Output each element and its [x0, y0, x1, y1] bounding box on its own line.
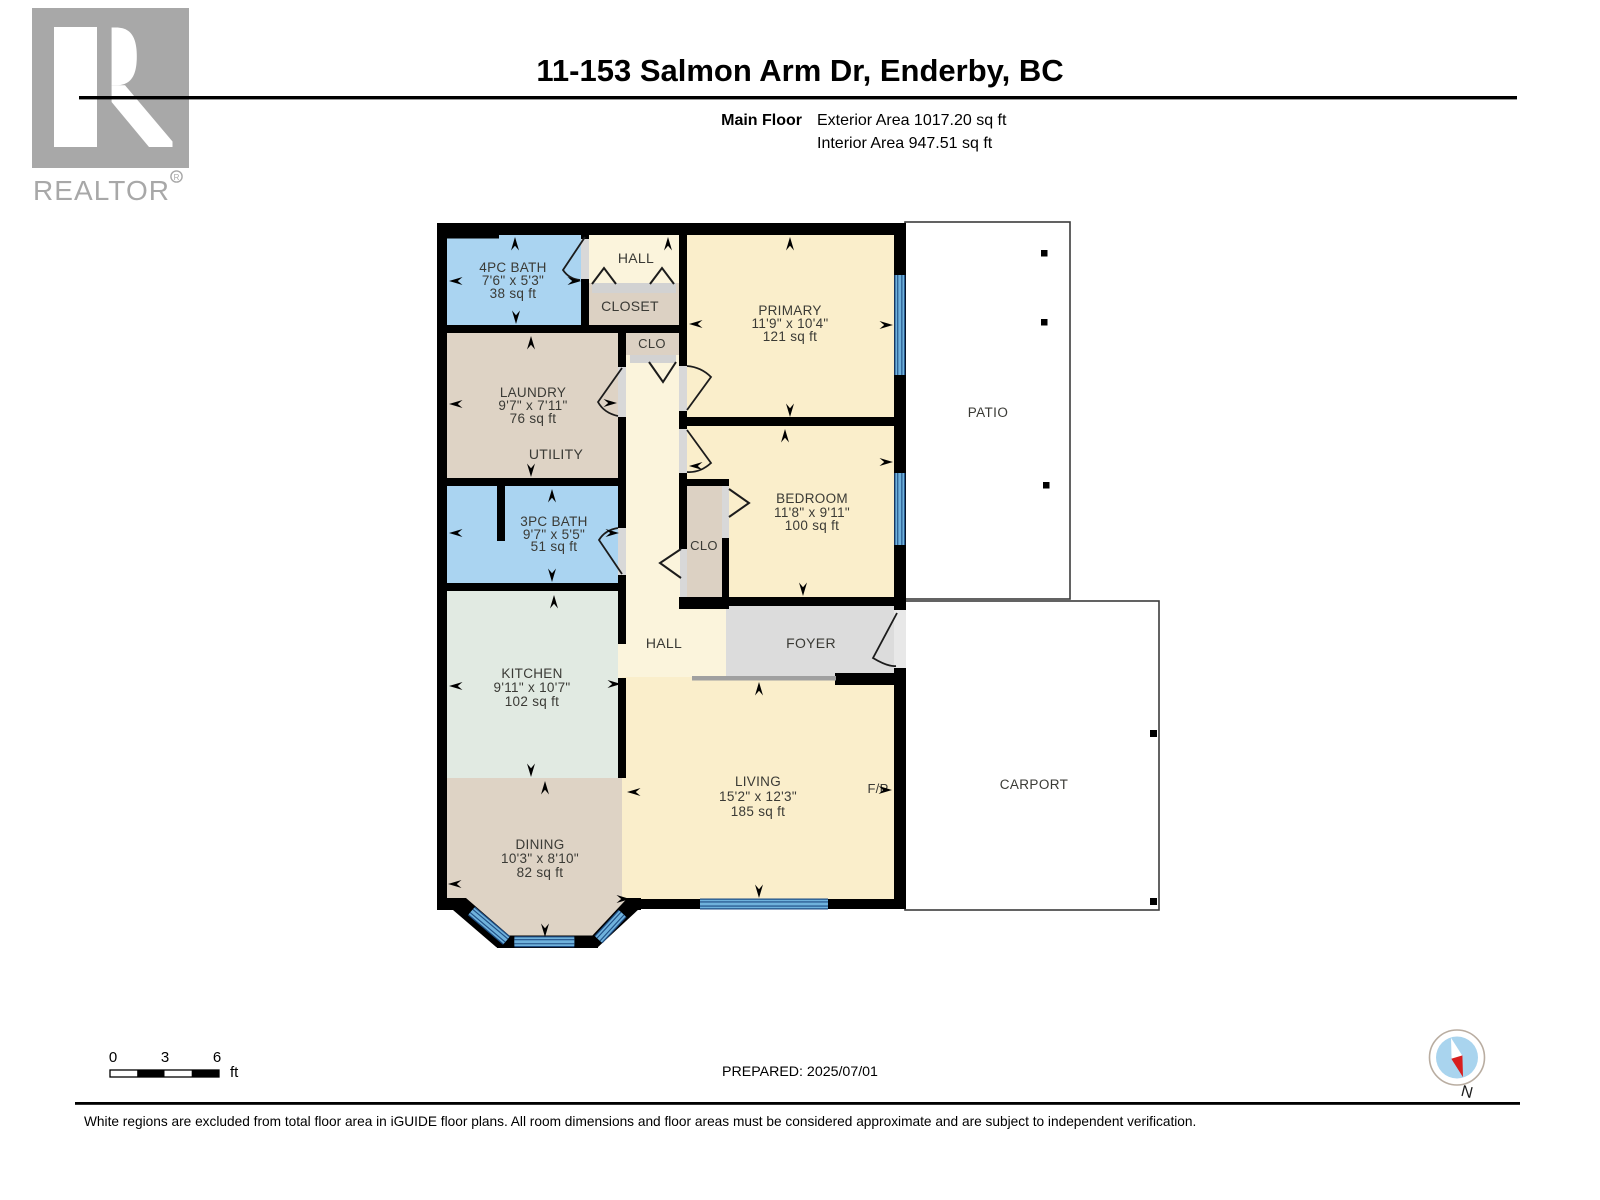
svg-text:FOYER: FOYER — [786, 635, 836, 651]
svg-text:HALL: HALL — [646, 635, 682, 651]
svg-text:CARPORT: CARPORT — [1000, 777, 1069, 792]
svg-text:R: R — [174, 173, 180, 182]
svg-text:51 sq ft: 51 sq ft — [531, 539, 578, 554]
svg-text:121 sq ft: 121 sq ft — [763, 329, 818, 344]
svg-text:38 sq ft: 38 sq ft — [490, 286, 537, 301]
svg-text:LIVING: LIVING — [735, 774, 781, 789]
svg-text:PREPARED: 2025/07/01: PREPARED: 2025/07/01 — [722, 1064, 878, 1080]
svg-text:6: 6 — [213, 1049, 221, 1066]
svg-text:REALTOR: REALTOR — [33, 175, 170, 206]
svg-text:185 sq ft: 185 sq ft — [731, 804, 786, 819]
svg-text:PATIO: PATIO — [968, 405, 1009, 420]
svg-text:11-153 Salmon Arm Dr, Enderby,: 11-153 Salmon Arm Dr, Enderby, BC — [536, 53, 1063, 88]
svg-text:76 sq ft: 76 sq ft — [510, 411, 557, 426]
svg-text:Exterior Area 1017.20 sq ft: Exterior Area 1017.20 sq ft — [817, 112, 1007, 129]
svg-text:CLO: CLO — [638, 336, 666, 351]
svg-text:15'2" x 12'3": 15'2" x 12'3" — [719, 789, 797, 804]
svg-text:10'3" x 8'10": 10'3" x 8'10" — [501, 851, 579, 866]
svg-text:CLO: CLO — [690, 538, 718, 553]
svg-text:UTILITY: UTILITY — [529, 446, 584, 462]
svg-text:Main Floor: Main Floor — [721, 112, 802, 129]
svg-text:Interior Area 947.51 sq ft: Interior Area 947.51 sq ft — [817, 135, 993, 152]
svg-text:100 sq ft: 100 sq ft — [785, 518, 840, 533]
svg-text:ft: ft — [230, 1064, 239, 1081]
svg-text:KITCHEN: KITCHEN — [501, 666, 562, 681]
svg-text:BEDROOM: BEDROOM — [776, 491, 848, 506]
svg-text:3: 3 — [161, 1049, 169, 1066]
svg-text:CLOSET: CLOSET — [601, 298, 659, 314]
svg-text:102 sq ft: 102 sq ft — [505, 694, 560, 709]
svg-text:White regions are excluded fro: White regions are excluded from total fl… — [84, 1114, 1196, 1129]
svg-text:82 sq ft: 82 sq ft — [517, 865, 564, 880]
svg-text:HALL: HALL — [618, 250, 654, 266]
svg-text:DINING: DINING — [515, 837, 564, 852]
svg-text:0: 0 — [109, 1049, 117, 1066]
svg-text:9'11" x 10'7": 9'11" x 10'7" — [494, 680, 571, 695]
